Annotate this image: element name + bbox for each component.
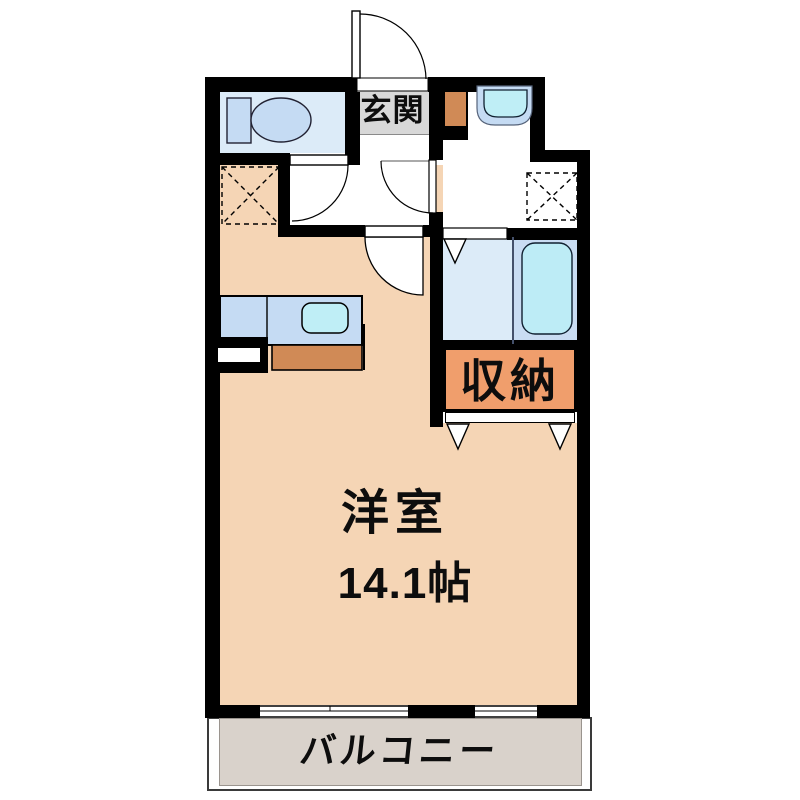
toilet-door-swing-icon bbox=[290, 155, 348, 221]
kitchen-sink-icon bbox=[302, 303, 348, 333]
bath-door-band bbox=[443, 228, 507, 239]
washroom-door-swing-icon bbox=[381, 160, 436, 213]
toilet-icon bbox=[227, 98, 311, 143]
room-name-label: 洋室 bbox=[290, 488, 500, 541]
storage-label: 収納 bbox=[443, 356, 577, 407]
sliding-window-icon bbox=[260, 705, 537, 718]
balcony-label: バルコニー bbox=[217, 731, 582, 771]
room-door-swing-icon bbox=[365, 226, 423, 295]
floorplan-canvas: 玄関 収納 洋室 14.1帖 バルコニー bbox=[0, 0, 800, 800]
washing-machine-space-icon bbox=[527, 173, 577, 220]
entrance-label: 玄関 bbox=[357, 94, 428, 128]
room-size-label: 14.1帖 bbox=[290, 560, 520, 608]
refrigerator-space-icon bbox=[222, 167, 279, 224]
washbasin-icon bbox=[477, 86, 532, 125]
entrance-door-swing-icon bbox=[352, 11, 428, 91]
kitchen-counter-icon bbox=[218, 296, 364, 373]
bathtub-icon bbox=[513, 237, 572, 344]
